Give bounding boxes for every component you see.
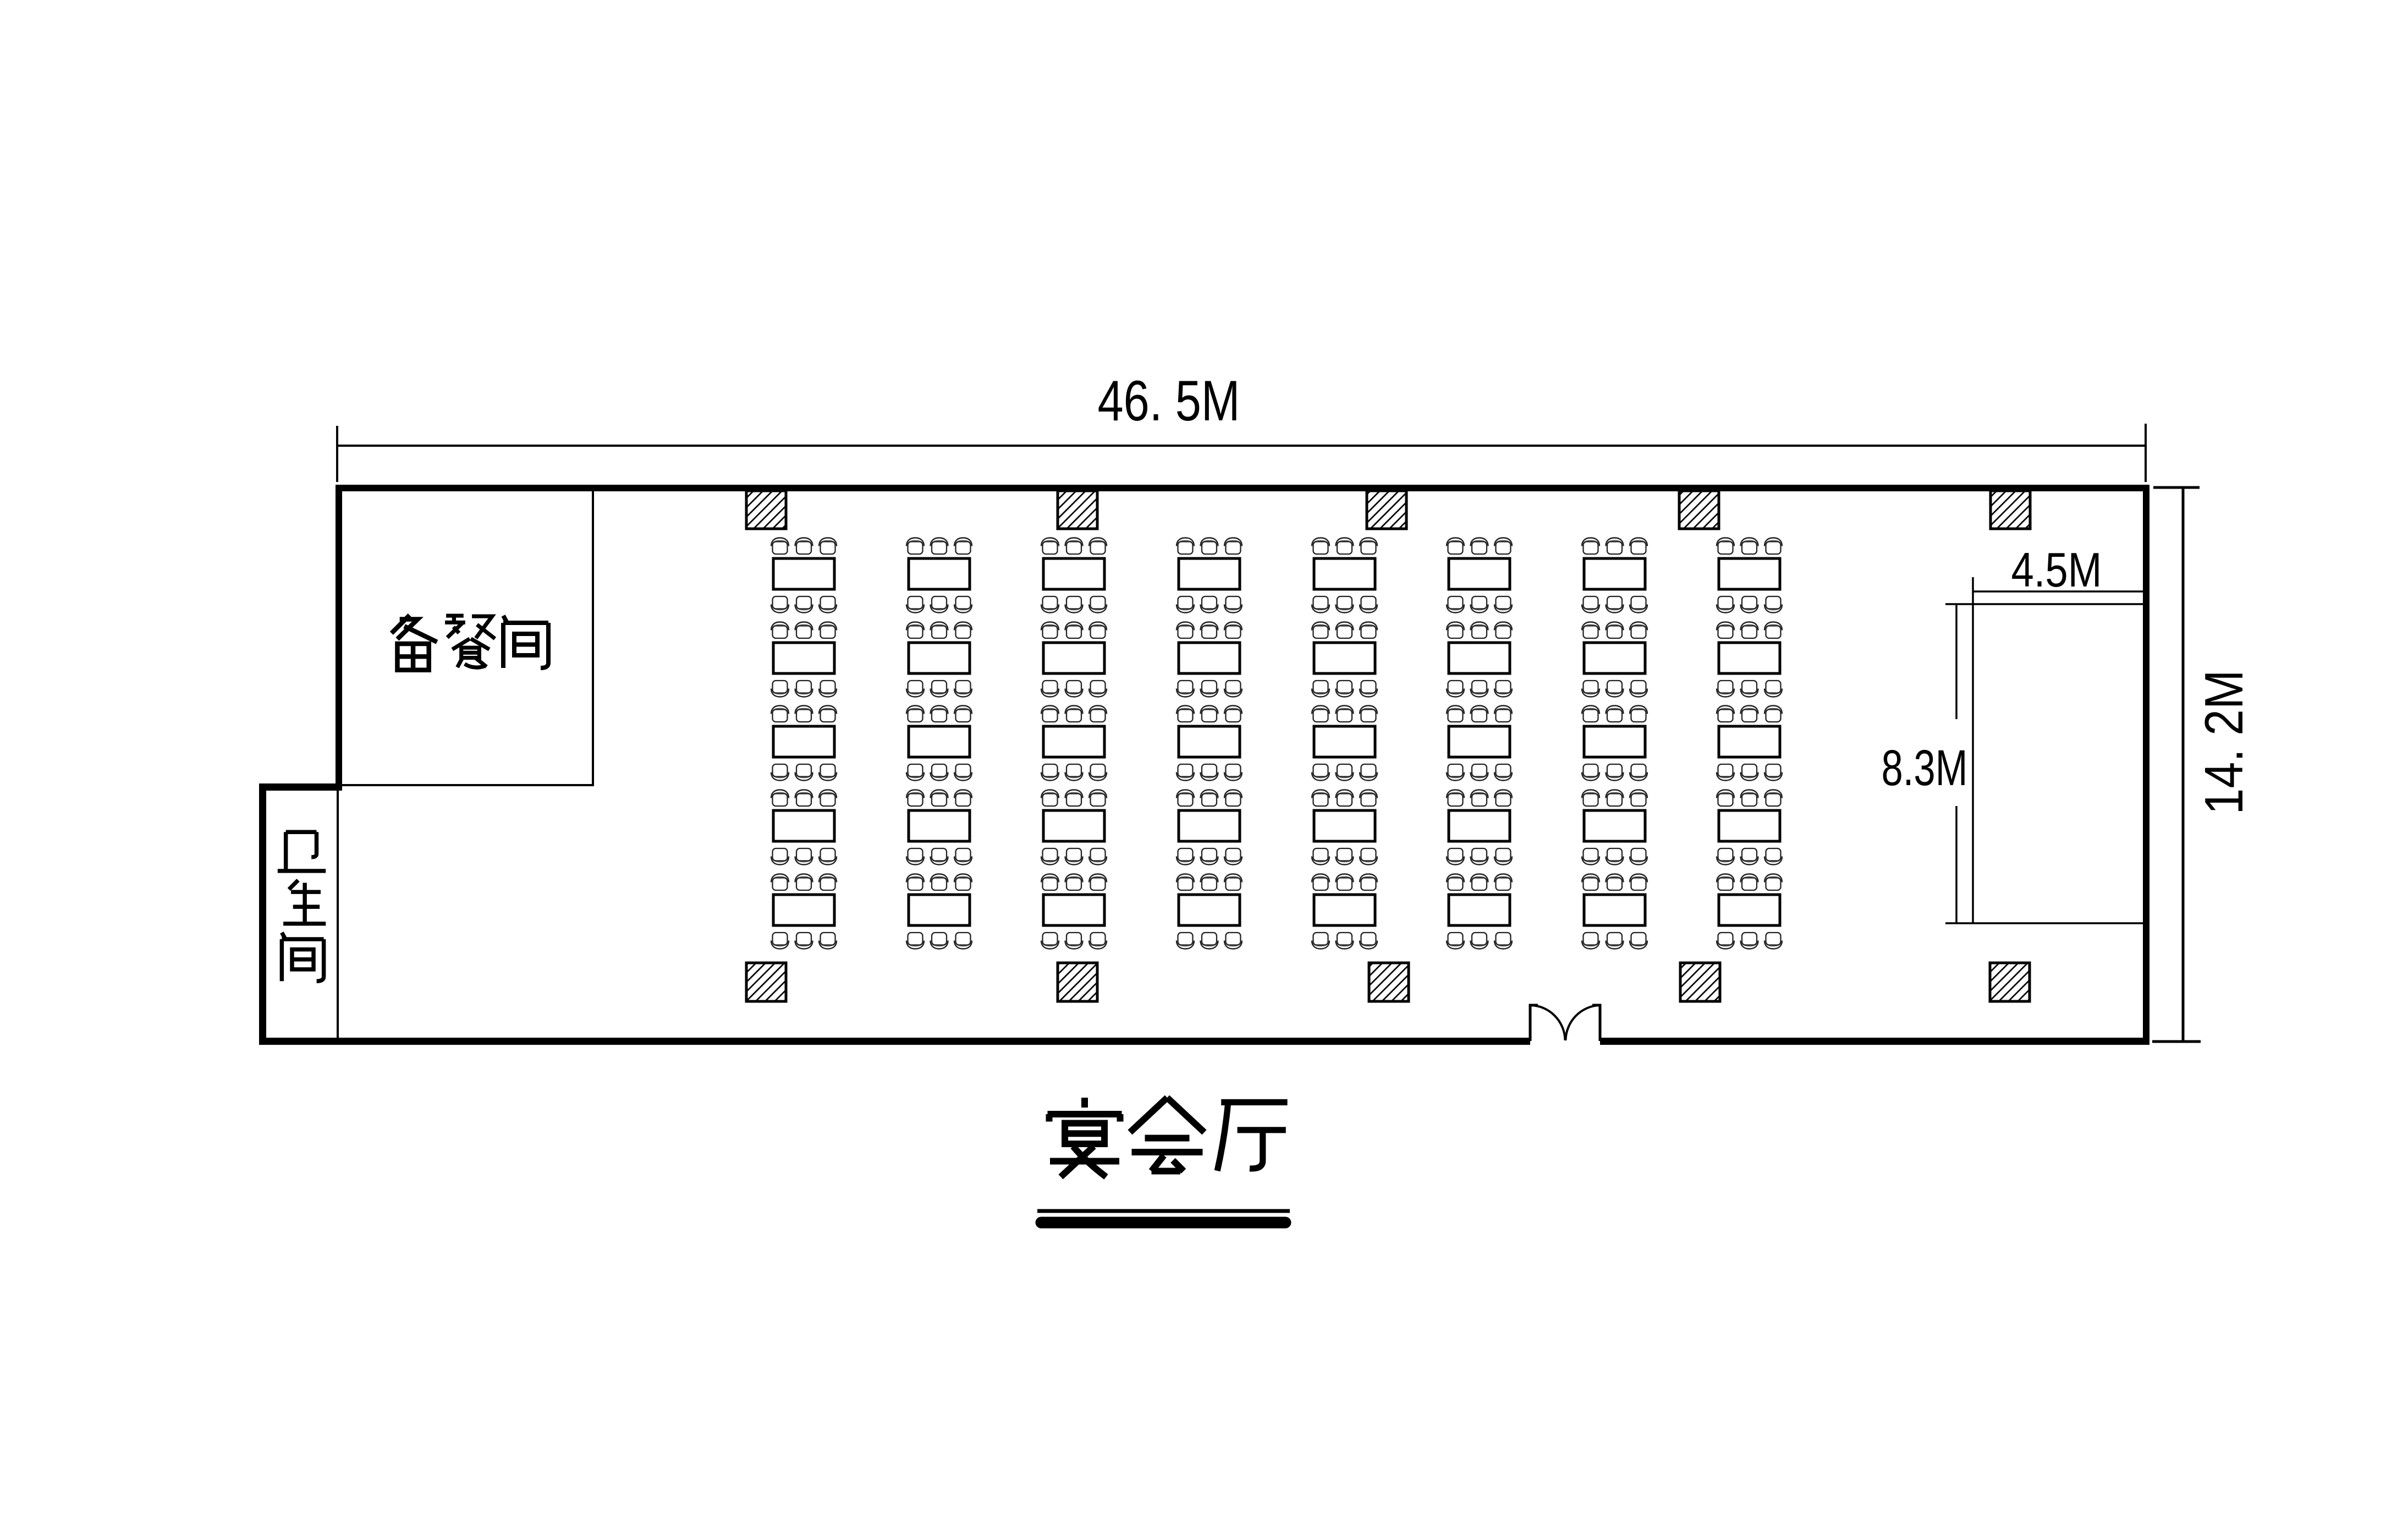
svg-text:46. 5M: 46. 5M [1098, 369, 1240, 433]
svg-text:14. 2M: 14. 2M [2193, 670, 2254, 815]
svg-text:4.5M: 4.5M [2011, 542, 2102, 597]
svg-text:8.3M: 8.3M [1882, 740, 1968, 796]
